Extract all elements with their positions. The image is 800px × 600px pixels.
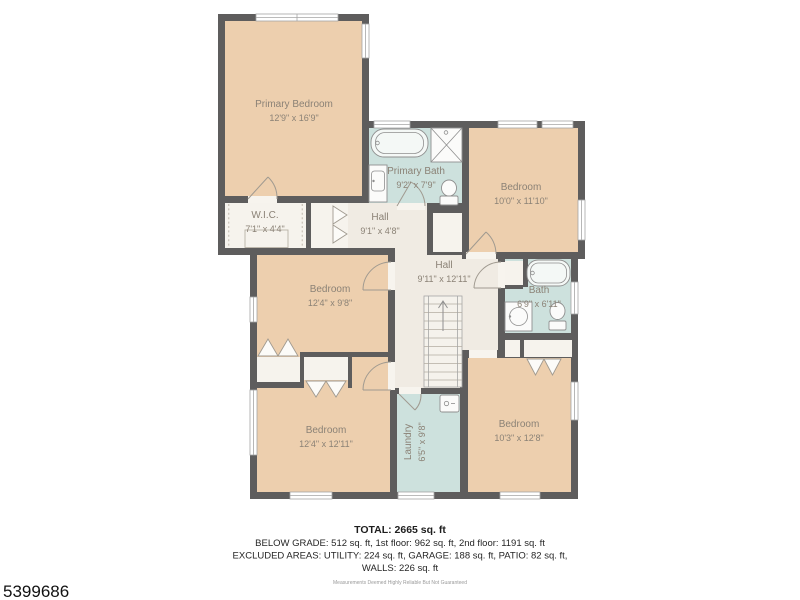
laundry-door-gap	[399, 387, 421, 394]
primary-bath-toilet-icon	[440, 196, 458, 205]
disclaimer-text: Measurements Deemed Highly Reliable But …	[333, 580, 467, 586]
room-name: Bedroom	[499, 419, 540, 430]
bedroom-sw-door-gap	[388, 362, 395, 390]
room-dims: 7'1" x 4'4"	[245, 224, 284, 234]
room-dims: 6'5" x 9'8"	[417, 422, 427, 461]
bedroom-ne-door-gap	[466, 252, 496, 259]
primary-bath-door-gap	[397, 203, 425, 210]
closet-se2-floor	[524, 340, 572, 357]
room-name: Bedroom	[501, 182, 542, 193]
room-name: Primary Bath	[387, 166, 445, 177]
closet-sw2-floor	[304, 357, 348, 380]
closet-se1-floor	[505, 340, 520, 357]
room-name: Bath	[529, 285, 550, 296]
room-dims: 6'9" x 6'11"	[517, 299, 561, 309]
room-dims: 12'4" x 12'11"	[299, 439, 353, 449]
bath-tub-icon	[527, 260, 570, 286]
floor-plan-drawing: Primary Bedroom 12'9" x 16'9" Primary Ba…	[0, 0, 800, 600]
total-area-text: TOTAL: 2665 sq. ft	[354, 524, 446, 536]
room-dims: 10'3" x 12'8"	[494, 433, 543, 443]
floor-plan-page: Primary Bedroom 12'9" x 16'9" Primary Ba…	[0, 0, 800, 600]
primary-bedroom-door-gap	[248, 196, 277, 203]
laundry-washer-icon	[440, 395, 459, 412]
linen-closet-floor	[433, 213, 462, 252]
room-name: Primary Bedroom	[255, 99, 333, 110]
bath-closet-wall2	[505, 285, 523, 289]
walls-area-text: WALLS: 226 sq. ft	[362, 563, 439, 574]
room-name: Bedroom	[306, 425, 347, 436]
grade-area-text: BELOW GRADE: 512 sq. ft, 1st floor: 962 …	[255, 538, 545, 549]
listing-id: 5399686	[3, 582, 69, 600]
room-name: Hall	[371, 212, 388, 223]
room-dims: 9'11" x 12'11"	[417, 274, 470, 284]
bath-toilet-icon	[549, 321, 566, 330]
room-name: Bedroom	[310, 284, 351, 295]
room-dims: 9'1" x 4'8"	[360, 226, 399, 236]
staircase	[424, 296, 462, 387]
bedroom-west-door-gap	[388, 262, 395, 290]
hall-closet-floor	[311, 203, 348, 248]
room-dims: 10'0" x 11'10"	[494, 196, 548, 206]
footer: TOTAL: 2665 sq. ft BELOW GRADE: 512 sq. …	[3, 524, 567, 600]
bedroom-se-door-gap	[469, 350, 497, 358]
room-name: Laundry	[403, 424, 414, 460]
closet-sw1-floor	[257, 357, 300, 382]
room-name: W.I.C.	[251, 210, 278, 221]
room-dims: 12'9" x 16'9"	[269, 113, 318, 123]
bath-linen-closet	[505, 261, 523, 285]
hall-neck	[395, 248, 427, 255]
room-dims: 9'2" x 7'9"	[396, 180, 435, 190]
excluded-area-text: EXCLUDED AREAS: UTILITY: 224 sq. ft, GAR…	[233, 551, 568, 562]
bedroom-sw-alcove	[352, 357, 388, 388]
room-name: Hall	[435, 260, 452, 271]
bath-door-gap	[498, 262, 505, 288]
room-dims: 12'4" x 9'8"	[308, 298, 352, 308]
